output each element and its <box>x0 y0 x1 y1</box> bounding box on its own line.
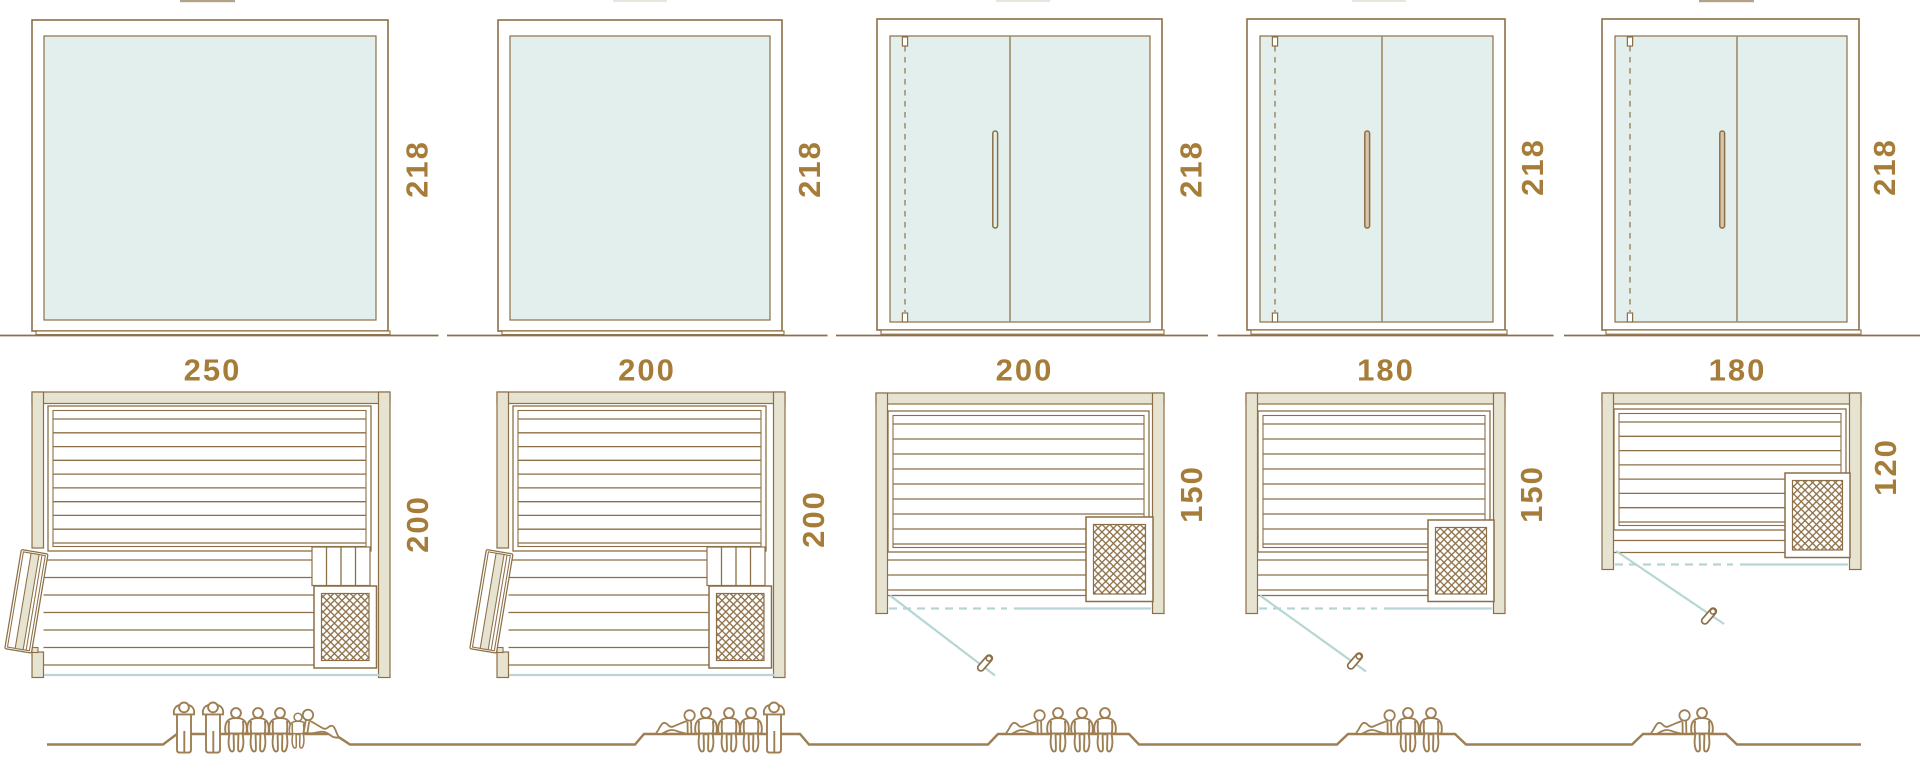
svg-text:218: 218 <box>792 140 827 198</box>
svg-text:200: 200 <box>400 495 435 553</box>
svg-text:150: 150 <box>1174 465 1209 523</box>
svg-text:200: 200 <box>618 353 676 388</box>
svg-text:180: 180 <box>1357 353 1415 388</box>
svg-text:200: 200 <box>796 490 831 548</box>
svg-text:120: 120 <box>1868 438 1903 496</box>
svg-text:218: 218 <box>1174 140 1209 198</box>
svg-text:218: 218 <box>1515 138 1550 196</box>
svg-text:180: 180 <box>1709 353 1767 388</box>
svg-text:218: 218 <box>400 140 435 198</box>
svg-text:250: 250 <box>184 353 242 388</box>
svg-text:150: 150 <box>1514 465 1549 523</box>
svg-text:218: 218 <box>1867 138 1902 196</box>
svg-text:200: 200 <box>996 353 1054 388</box>
